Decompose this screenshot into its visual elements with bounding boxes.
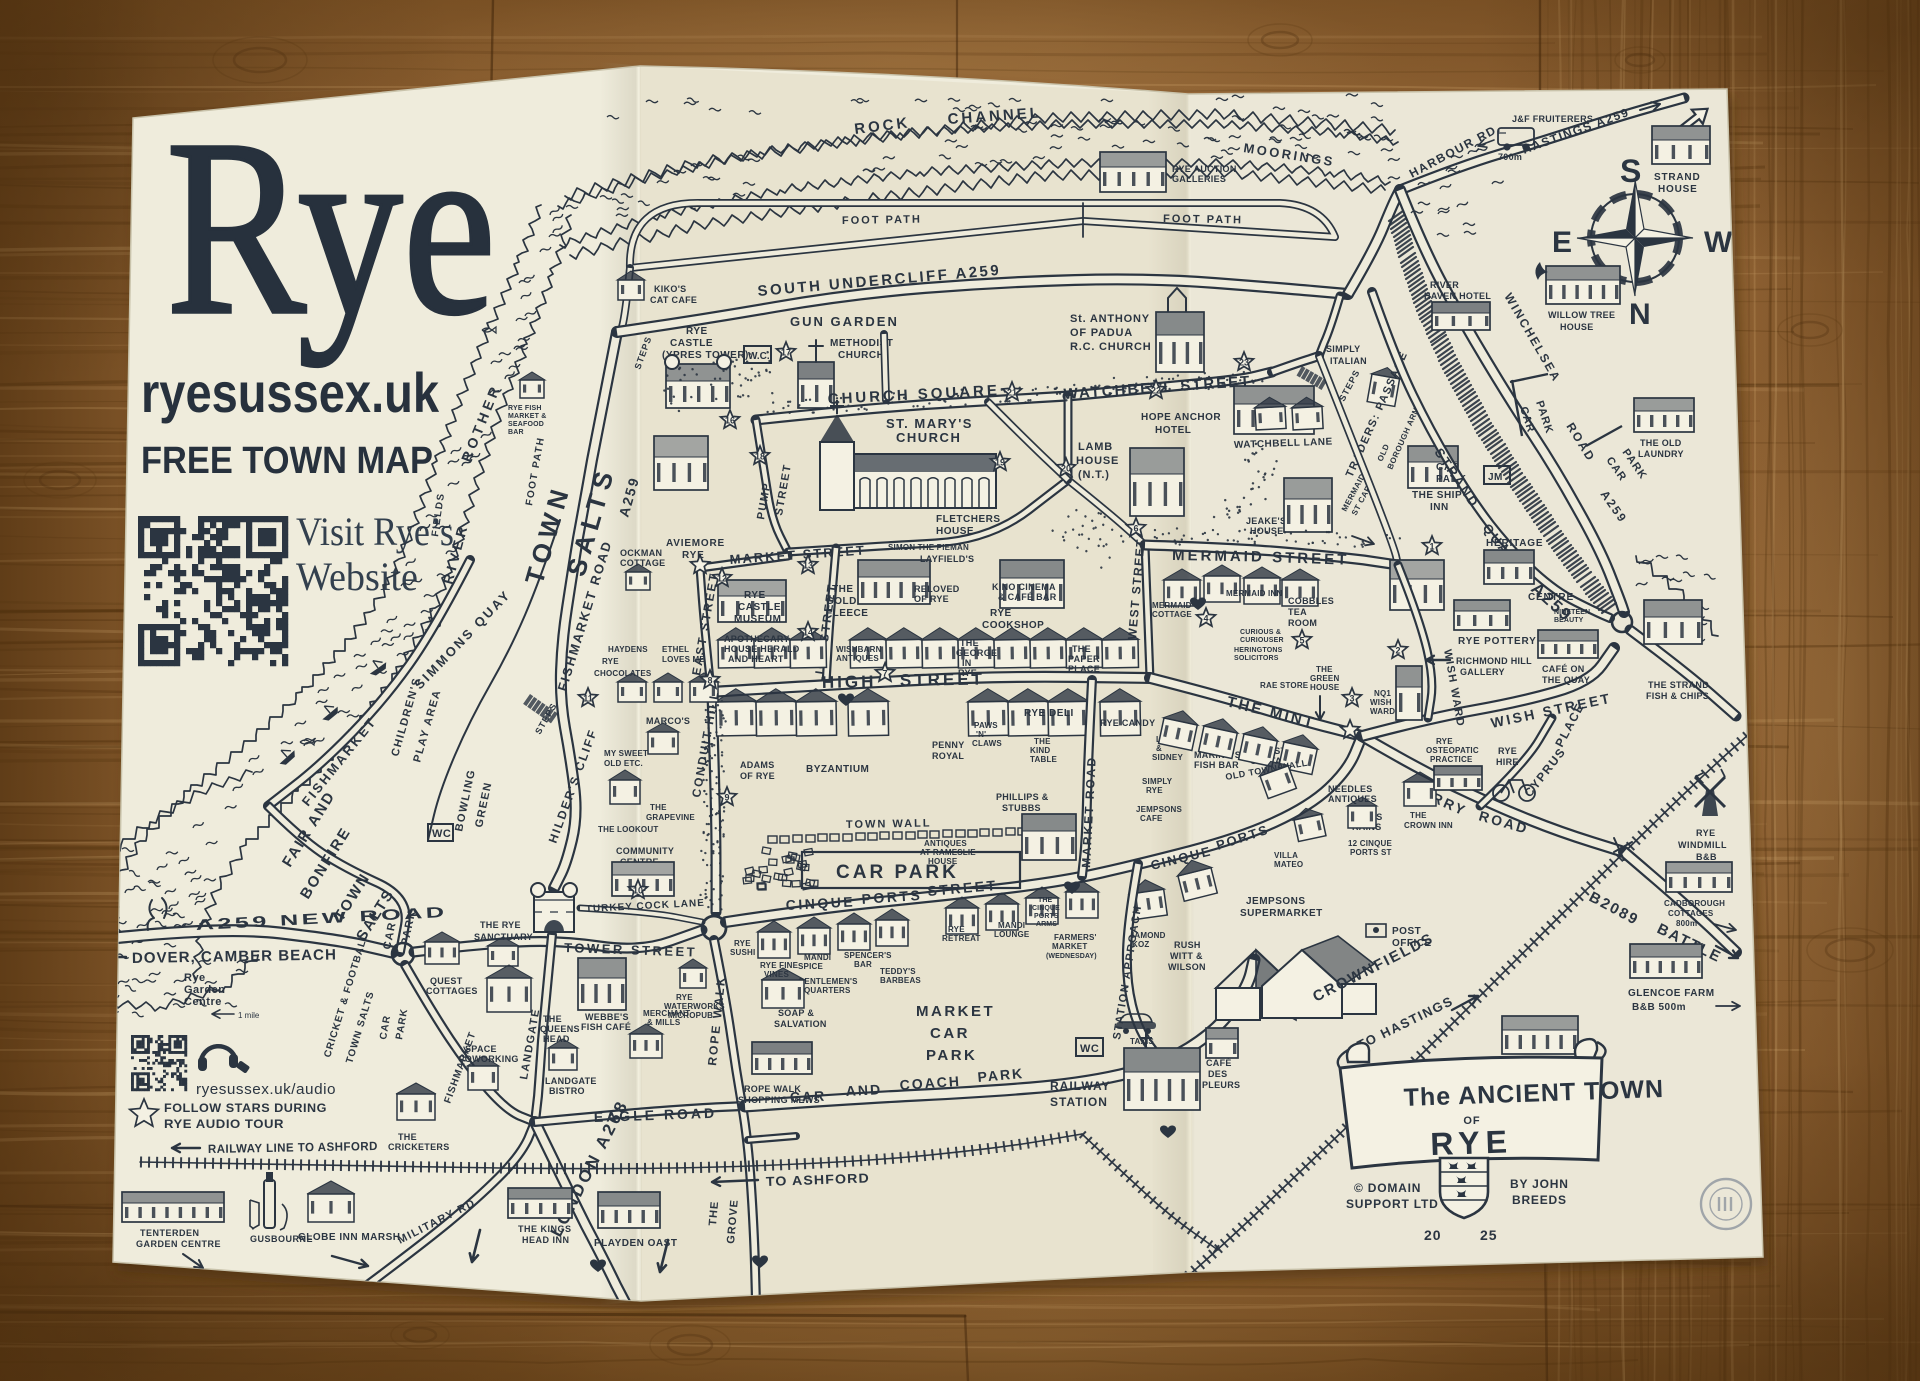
svg-text:SEAFOOD: SEAFOOD: [508, 421, 544, 428]
svg-text:ETHEL: ETHEL: [662, 645, 689, 654]
svg-text:CLAWS: CLAWS: [972, 739, 1002, 748]
svg-text:RYE: RYE: [1146, 786, 1163, 795]
svg-text:LAMB: LAMB: [1078, 441, 1113, 453]
svg-text:DOVER, CAMBER BEACH: DOVER, CAMBER BEACH: [132, 946, 337, 967]
svg-text:RICHMOND HILL: RICHMOND HILL: [1456, 656, 1532, 666]
svg-text:W: W: [1704, 226, 1733, 259]
svg-text:CAFÉ ON: CAFÉ ON: [1542, 664, 1585, 674]
svg-text:RUSH: RUSH: [1174, 940, 1201, 950]
svg-text:THE: THE: [650, 803, 667, 812]
svg-text:17: 17: [781, 348, 791, 358]
svg-text:THE: THE: [1038, 897, 1053, 904]
svg-text:RYE: RYE: [990, 608, 1012, 619]
svg-text:RAILWAY LINE TO ASHFORD: RAILWAY LINE TO ASHFORD: [208, 1139, 378, 1156]
svg-text:RYE: RYE: [734, 939, 751, 948]
svg-text:11: 11: [583, 694, 593, 704]
svg-text:FLEECE: FLEECE: [826, 608, 868, 619]
svg-text:PARK: PARK: [926, 1047, 977, 1064]
svg-text:STUBBS: STUBBS: [1002, 803, 1041, 813]
svg-text:ITALIAN: ITALIAN: [1330, 356, 1367, 366]
svg-text:GRAPEVINE: GRAPEVINE: [646, 813, 695, 822]
svg-text:© DOMAIN: © DOMAIN: [1354, 1181, 1421, 1195]
svg-text:9: 9: [724, 793, 729, 803]
svg-text:RYE: RYE: [744, 590, 766, 601]
svg-text:20: 20: [1061, 464, 1071, 474]
svg-text:25: 25: [1480, 1227, 1498, 1243]
svg-text:GREEN: GREEN: [1310, 674, 1339, 683]
svg-text:SOLICITORS: SOLICITORS: [1234, 655, 1279, 662]
svg-text:LOVES ME: LOVES ME: [662, 655, 705, 664]
svg-text:'N': 'N': [976, 730, 986, 739]
svg-text:MARKET: MARKET: [1052, 942, 1087, 951]
svg-text:SALVATION: SALVATION: [774, 1019, 827, 1029]
svg-text:PAWS: PAWS: [974, 721, 998, 730]
svg-text:B&B 500m: B&B 500m: [1632, 1002, 1686, 1013]
svg-text:THE OLD: THE OLD: [1640, 438, 1682, 448]
svg-text:PENNY: PENNY: [932, 740, 965, 750]
svg-text:LAUNDRY: LAUNDRY: [1638, 449, 1684, 459]
svg-text:MANDI: MANDI: [998, 921, 1025, 930]
svg-text:MATEO: MATEO: [1274, 860, 1303, 869]
svg-text:MERMAID: MERMAID: [1152, 601, 1192, 610]
svg-text:ARMS: ARMS: [1036, 921, 1057, 928]
svg-text:CAT CAFE: CAT CAFE: [650, 295, 697, 305]
svg-text:J&F FRUITERERS: J&F FRUITERERS: [1512, 114, 1593, 124]
svg-text:THE SHIP: THE SHIP: [1412, 490, 1462, 501]
svg-text:QUEST: QUEST: [430, 976, 463, 986]
svg-text:8: 8: [707, 676, 712, 686]
svg-text:ANTIQUES: ANTIQUES: [924, 839, 967, 848]
svg-text:OF RYE: OF RYE: [740, 771, 775, 781]
svg-text:MARKET &: MARKET &: [508, 413, 547, 420]
svg-text:AND: AND: [845, 1081, 882, 1099]
svg-text:PAPER: PAPER: [1068, 654, 1100, 664]
svg-text:CURIOUS &: CURIOUS &: [1240, 629, 1281, 636]
svg-text:HOUSE: HOUSE: [1076, 455, 1119, 467]
svg-text:SIMPLY: SIMPLY: [1326, 344, 1360, 354]
svg-text:INN: INN: [1430, 502, 1449, 513]
svg-text:3: 3: [1349, 694, 1354, 704]
svg-text:N: N: [1629, 298, 1651, 331]
svg-text:BYZANTIUM: BYZANTIUM: [806, 764, 869, 775]
svg-text:GUN GARDEN: GUN GARDEN: [790, 314, 899, 329]
svg-text:QUEENS: QUEENS: [540, 1024, 580, 1034]
svg-text:12 CINQUE: 12 CINQUE: [1348, 839, 1392, 848]
svg-text:BREEDS: BREEDS: [1512, 1193, 1567, 1207]
svg-text:HOUSE: HOUSE: [928, 857, 958, 866]
svg-text:800m: 800m: [1676, 919, 1697, 928]
svg-text:(N.T.): (N.T.): [1078, 469, 1110, 481]
svg-text:SUPERMARKET: SUPERMARKET: [1240, 908, 1323, 919]
svg-text:FOOT PATH: FOOT PATH: [842, 214, 922, 227]
svg-text:GALLERIES: GALLERIES: [1172, 174, 1226, 184]
svg-text:CAFÉ: CAFÉ: [1206, 1058, 1232, 1068]
svg-text:PHILLIPS &: PHILLIPS &: [996, 792, 1049, 802]
svg-text:4: 4: [1203, 614, 1208, 624]
svg-text:FISH BAR: FISH BAR: [1194, 760, 1239, 770]
svg-text:B&B: B&B: [1696, 852, 1717, 862]
svg-text:PORTS: PORTS: [1034, 913, 1059, 920]
svg-text:CAR: CAR: [930, 1025, 970, 1042]
svg-text:RYE POTTERY: RYE POTTERY: [1458, 636, 1537, 647]
svg-text:SUPPORT LTD: SUPPORT LTD: [1346, 1197, 1439, 1211]
svg-text:HOPE ANCHOR: HOPE ANCHOR: [1141, 412, 1221, 423]
svg-text:QUARTERS: QUARTERS: [804, 986, 851, 995]
svg-text:HOUSE: HOUSE: [1310, 683, 1340, 692]
svg-text:COOKSHOP: COOKSHOP: [982, 620, 1044, 631]
svg-text:OF PADUA: OF PADUA: [1070, 327, 1133, 339]
svg-text:LAYFIELD'S: LAYFIELD'S: [920, 554, 974, 564]
svg-text:FLETCHERS: FLETCHERS: [936, 514, 1001, 525]
svg-text:HAVEN HOTEL: HAVEN HOTEL: [1424, 291, 1491, 301]
svg-text:BARBEAS: BARBEAS: [880, 976, 921, 985]
svg-text:ANTIQUES: ANTIQUES: [836, 654, 879, 663]
svg-text:RYE: RYE: [676, 993, 693, 1002]
svg-text:WISHBARN: WISHBARN: [836, 645, 882, 654]
svg-text:TOWN WALL: TOWN WALL: [846, 818, 932, 831]
svg-text:STRAND: STRAND: [1654, 172, 1700, 183]
svg-text:MARKET: MARKET: [916, 1003, 995, 1020]
svg-text:RYE: RYE: [1498, 746, 1517, 756]
svg-text:14: 14: [803, 628, 813, 638]
svg-text:S: S: [1620, 153, 1641, 189]
svg-text:AND HEART: AND HEART: [728, 654, 784, 664]
svg-text:WEBBE'S: WEBBE'S: [585, 1012, 629, 1022]
svg-text:AVIEMORE: AVIEMORE: [666, 538, 725, 549]
svg-text:HOTEL: HOTEL: [1155, 425, 1191, 436]
svg-text:RYE FISH: RYE FISH: [508, 405, 542, 412]
svg-text:PLACE: PLACE: [1068, 664, 1100, 674]
svg-text:GLOBE INN MARSH: GLOBE INN MARSH: [298, 1232, 401, 1243]
svg-text:MUSEUM: MUSEUM: [734, 614, 781, 625]
svg-text:700m: 700m: [1498, 152, 1522, 162]
svg-text:COBBLES: COBBLES: [1288, 596, 1334, 606]
svg-text:19: 19: [995, 458, 1005, 468]
svg-text:HOUSE: HOUSE: [1560, 322, 1594, 332]
svg-text:BY JOHN: BY JOHN: [1510, 1177, 1569, 1191]
svg-text:SHOPPING MEWS: SHOPPING MEWS: [738, 1095, 820, 1105]
svg-text:CASTLE: CASTLE: [738, 602, 781, 613]
svg-text:RIVER: RIVER: [1430, 280, 1459, 290]
svg-text:RYE FINE: RYE FINE: [760, 961, 799, 970]
svg-text:GEORGE: GEORGE: [956, 648, 997, 658]
svg-text:NQ1: NQ1: [1374, 689, 1391, 698]
svg-text:GALLERY: GALLERY: [1460, 667, 1505, 677]
svg-text:HOUSE: HOUSE: [936, 526, 974, 537]
svg-text:2: 2: [1395, 646, 1400, 656]
svg-text:CHURCH: CHURCH: [896, 430, 961, 445]
svg-text:KINO CINEMA: KINO CINEMA: [992, 582, 1056, 592]
svg-text:MICROPUB: MICROPUB: [668, 1011, 713, 1020]
svg-text:1 mile: 1 mile: [238, 1011, 260, 1020]
svg-text:THE: THE: [1072, 644, 1091, 654]
svg-text:HIRE: HIRE: [1496, 757, 1519, 767]
svg-text:RYE AUDIO TOUR: RYE AUDIO TOUR: [164, 1117, 284, 1131]
svg-text:COTTAGE: COTTAGE: [1152, 610, 1192, 619]
svg-text:12: 12: [717, 574, 727, 584]
svg-text:HOUSE: HOUSE: [1658, 184, 1698, 195]
svg-text:JEMPSONS: JEMPSONS: [1136, 805, 1183, 814]
svg-text:18: 18: [755, 452, 765, 462]
svg-text:HERITAGE: HERITAGE: [1486, 538, 1543, 549]
svg-text:OCKMAN: OCKMAN: [620, 548, 662, 558]
svg-text:RYE: RYE: [602, 657, 619, 666]
svg-text:WC: WC: [1080, 1043, 1099, 1055]
svg-text:HERINGTONS: HERINGTONS: [1234, 647, 1283, 654]
svg-text:TABLE: TABLE: [1030, 755, 1058, 764]
svg-text:FREE TOWN MAP: FREE TOWN MAP: [141, 440, 433, 482]
svg-text:BEAUTY: BEAUTY: [1554, 617, 1584, 624]
svg-text:SIMPLY: SIMPLY: [1142, 777, 1173, 786]
svg-text:THE LOOKOUT: THE LOOKOUT: [598, 825, 658, 834]
svg-text:RYE: RYE: [1436, 737, 1453, 746]
svg-text:CENTRE: CENTRE: [1528, 592, 1574, 603]
svg-text:MERMAID: MERMAID: [1172, 547, 1265, 566]
svg-text:RETREAT: RETREAT: [942, 934, 981, 943]
svg-text:OF RYE: OF RYE: [914, 594, 949, 604]
svg-text:SPACE: SPACE: [465, 1044, 497, 1054]
svg-text:THE STRAND: THE STRAND: [1648, 680, 1709, 690]
svg-text:THE RYE: THE RYE: [480, 920, 521, 930]
svg-text:SPENCER'S: SPENCER'S: [844, 951, 892, 960]
svg-text:SOAP &: SOAP &: [778, 1008, 814, 1018]
svg-text:10: 10: [633, 886, 643, 896]
svg-text:OSTEOPATIC: OSTEOPATIC: [1426, 746, 1479, 755]
svg-text:HOUSE HERALD: HOUSE HERALD: [724, 644, 800, 654]
svg-text:FOOT PATH: FOOT PATH: [1163, 213, 1243, 226]
svg-text:GENTLEMEN'S: GENTLEMEN'S: [798, 977, 858, 986]
svg-text:FISH & CHIPS: FISH & CHIPS: [1646, 691, 1709, 701]
svg-text:St. ANTHONY: St. ANTHONY: [1070, 313, 1150, 325]
svg-text:WINDMILL: WINDMILL: [1678, 840, 1727, 850]
svg-text:KIND: KIND: [1030, 746, 1050, 755]
svg-text:MARCO'S: MARCO'S: [646, 716, 690, 726]
svg-text:THE: THE: [398, 1132, 417, 1142]
svg-text:FISH CAFÉ: FISH CAFÉ: [581, 1022, 631, 1032]
svg-text:HEAD INN: HEAD INN: [522, 1235, 570, 1245]
svg-text:ROOM: ROOM: [1288, 618, 1317, 628]
svg-text:CRICKETERS: CRICKETERS: [388, 1142, 450, 1152]
svg-text:6: 6: [1133, 524, 1138, 534]
svg-text:Rye: Rye: [166, 87, 496, 367]
svg-text:ryesussex.uk/audio: ryesussex.uk/audio: [196, 1081, 336, 1098]
svg-text:APOTHECARY: APOTHECARY: [724, 634, 790, 644]
svg-text:RYE: RYE: [1430, 1123, 1514, 1162]
svg-text:RELOVED: RELOVED: [914, 584, 960, 594]
svg-text:(WEDNESDAY): (WEDNESDAY): [1046, 953, 1097, 960]
svg-text:Rye: Rye: [184, 972, 206, 984]
svg-text:5: 5: [1299, 636, 1304, 646]
svg-text:ST. MARY'S: ST. MARY'S: [886, 416, 973, 431]
svg-text:CINQUE: CINQUE: [1032, 905, 1060, 912]
svg-text:IN: IN: [962, 658, 972, 668]
svg-text:STATION: STATION: [1050, 1095, 1108, 1109]
svg-text:SPICE: SPICE: [798, 962, 823, 971]
svg-text:RAE STORE: RAE STORE: [1260, 681, 1309, 690]
svg-text:WILSON: WILSON: [1168, 962, 1206, 972]
svg-text:THE: THE: [707, 1200, 721, 1226]
svg-text:TEA: TEA: [1288, 607, 1307, 617]
svg-text:PLEURS: PLEURS: [1202, 1080, 1240, 1090]
svg-text:JEMPSONS: JEMPSONS: [1246, 896, 1306, 907]
svg-text:SIMON THE PIEMAN: SIMON THE PIEMAN: [888, 543, 969, 552]
svg-text:ADAMS: ADAMS: [740, 760, 775, 770]
svg-text:23: 23: [1239, 358, 1249, 368]
svg-text:7: 7: [882, 669, 887, 679]
svg-text:16: 16: [725, 416, 735, 426]
svg-text:CHURCH: CHURCH: [838, 350, 884, 361]
svg-text:LOUNGE: LOUNGE: [994, 930, 1030, 939]
svg-text:RYE DELI: RYE DELI: [1024, 708, 1074, 719]
svg-text:CROWN INN: CROWN INN: [1404, 821, 1453, 830]
svg-text:RAILWAY: RAILWAY: [1050, 1079, 1111, 1093]
svg-text:NEEDLES: NEEDLES: [1328, 784, 1373, 794]
svg-text:CASTLE: CASTLE: [670, 338, 713, 349]
svg-text:20: 20: [1424, 1227, 1442, 1243]
svg-text:R.C. CHURCH: R.C. CHURCH: [1070, 341, 1152, 353]
svg-text:MANDI: MANDI: [804, 953, 831, 962]
svg-text:THE: THE: [1316, 665, 1333, 674]
svg-text:RYE: RYE: [686, 326, 708, 337]
svg-text:PORTS ST: PORTS ST: [1350, 848, 1392, 857]
svg-text:FOLLOW STARS DURING: FOLLOW STARS DURING: [164, 1101, 327, 1115]
svg-text:LANDGATE: LANDGATE: [545, 1076, 597, 1086]
svg-text:E: E: [1552, 226, 1572, 259]
svg-text:ROYAL: ROYAL: [932, 751, 964, 761]
svg-text:Website: Website: [296, 554, 418, 599]
svg-text:JM: JM: [1488, 472, 1503, 483]
svg-text:&: &: [1156, 744, 1162, 753]
svg-text:1: 1: [1429, 542, 1434, 552]
svg-text:WILLOW TREE: WILLOW TREE: [1548, 310, 1615, 320]
svg-text:BAR: BAR: [508, 429, 524, 436]
svg-text:Garden: Garden: [184, 984, 226, 996]
svg-text:TEDDY'S: TEDDY'S: [880, 967, 916, 976]
svg-text:VILLA: VILLA: [1274, 851, 1298, 860]
svg-text:BAR: BAR: [854, 960, 872, 969]
svg-text:TENTERDEN: TENTERDEN: [140, 1228, 200, 1238]
svg-text:STREET: STREET: [1272, 549, 1350, 569]
svg-text:BISTRO: BISTRO: [549, 1086, 585, 1096]
svg-text:THE KINGS: THE KINGS: [518, 1224, 572, 1234]
svg-text:MERMAID INN: MERMAID INN: [1226, 589, 1282, 598]
svg-text:JEAKE'S: JEAKE'S: [1246, 516, 1286, 526]
svg-text:22: 22: [1151, 386, 1161, 396]
svg-text:CADBOROUGH: CADBOROUGH: [1664, 899, 1725, 908]
svg-text:COTTAGES: COTTAGES: [426, 986, 478, 996]
svg-text:WARD: WARD: [1370, 707, 1395, 716]
svg-text:WISH: WISH: [1370, 698, 1392, 707]
svg-text:ryesussex.uk: ryesussex.uk: [141, 361, 440, 424]
svg-text:ROPE WALK: ROPE WALK: [744, 1084, 801, 1094]
svg-text:CURIOUSER: CURIOUSER: [1240, 637, 1284, 644]
svg-text:WC: WC: [432, 828, 451, 840]
svg-text:RYE AUCTION: RYE AUCTION: [1172, 164, 1237, 174]
svg-text:THE QUAY: THE QUAY: [1542, 675, 1590, 685]
svg-text:THE: THE: [960, 638, 979, 648]
svg-text:GARDEN CENTRE: GARDEN CENTRE: [136, 1239, 221, 1249]
svg-text:SUSHI: SUSHI: [730, 948, 755, 957]
svg-text:COMMUNITY: COMMUNITY: [616, 846, 674, 856]
svg-text:CAFE: CAFE: [1140, 814, 1163, 823]
svg-text:FARMERS': FARMERS': [1054, 933, 1097, 942]
svg-text:Centre: Centre: [184, 996, 222, 1008]
svg-text:WITT &: WITT &: [1170, 951, 1203, 961]
svg-text:MY SWEET: MY SWEET: [604, 749, 648, 758]
svg-text:CHOCOLATES: CHOCOLATES: [594, 669, 652, 678]
svg-text:RYE: RYE: [948, 925, 965, 934]
svg-text:AT RAMESLIE: AT RAMESLIE: [920, 848, 976, 857]
svg-text:RYE CANDY: RYE CANDY: [1100, 718, 1155, 728]
svg-text:THE: THE: [1410, 811, 1427, 820]
svg-text:RYE: RYE: [1696, 828, 1716, 838]
svg-text:13: 13: [803, 561, 813, 571]
svg-text:THE: THE: [1034, 737, 1051, 746]
svg-text:OLD ETC.: OLD ETC.: [604, 759, 643, 768]
svg-text:PRACTICE: PRACTICE: [1430, 755, 1473, 764]
svg-text:21: 21: [1007, 388, 1017, 398]
svg-text:SIDNEY: SIDNEY: [1152, 753, 1183, 762]
svg-text:NINETEEN: NINETEEN: [1554, 609, 1590, 616]
svg-text:HAYDENS: HAYDENS: [608, 645, 648, 654]
svg-text:GLENCOE FARM: GLENCOE FARM: [1628, 988, 1715, 999]
svg-text:& CAFÉ BAR: & CAFÉ BAR: [998, 592, 1057, 602]
svg-text:DES: DES: [1208, 1069, 1227, 1079]
svg-text:THE: THE: [543, 1014, 562, 1024]
svg-text:COTTAGES: COTTAGES: [1668, 909, 1714, 918]
svg-text:KIKO'S: KIKO'S: [654, 284, 686, 294]
svg-text:RYE: RYE: [958, 668, 977, 678]
svg-text:THE: THE: [832, 584, 854, 595]
